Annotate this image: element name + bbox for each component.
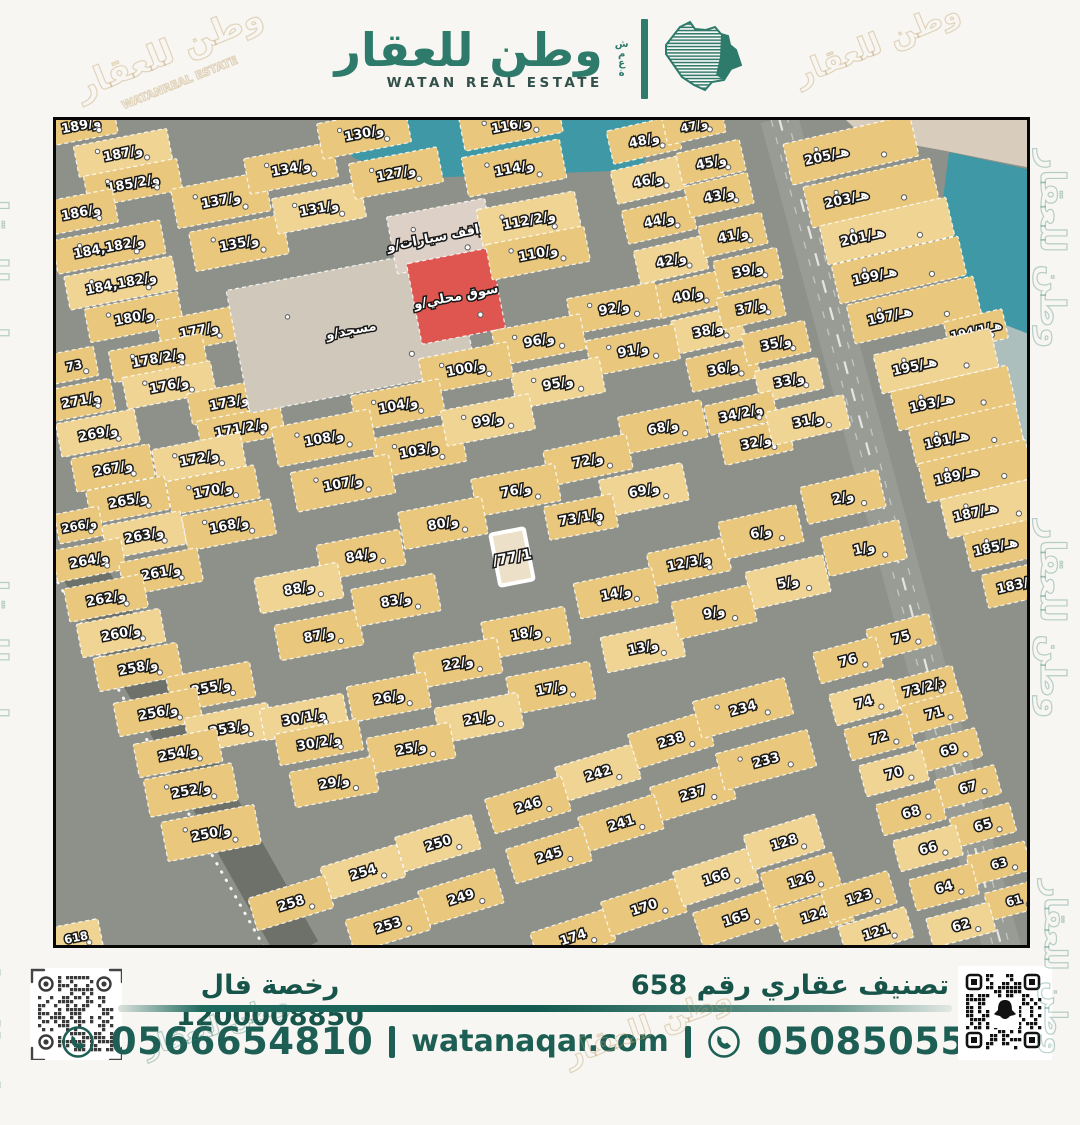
parcel-dot [369,168,374,173]
parcel-dot [991,437,997,443]
parcel-dot [105,179,110,184]
parcel-dot [146,284,152,290]
parcel-dot [89,279,94,284]
parcel-dot [124,601,130,607]
parcel-dot [88,528,94,534]
parcel-dot [570,692,576,698]
parcel-dot [901,194,907,200]
header: وطن للعقار WATAN REAL ESTATE ش م ع ة [0,0,1080,118]
parcel-dot [197,755,203,761]
brand-arabic: وطن للعقار [334,27,602,73]
parcel-dot [164,784,169,789]
parcel-dot [498,721,504,727]
parcel-dot [723,332,729,338]
contact-row: 0566654810 watanaqar.com 0508505505 [0,1020,1080,1063]
parcel-dot [725,164,731,170]
parcel-dot [95,403,101,409]
parcel-dot [509,248,514,253]
parcel-dot [292,203,297,208]
parcel-dot [177,714,183,720]
parcel-dot [826,422,832,428]
parcel-dot [193,194,198,199]
watermark-text: وطن للعقار [0,180,14,378]
parcel-dot [83,368,89,374]
parcel-dot [707,564,713,570]
parcel-dot [134,248,140,254]
parcel-dot [653,353,659,359]
parcel-dot [559,343,565,349]
parcel-dot [249,528,255,534]
parcel-dot [881,151,887,157]
saudi-map-logo-icon [658,17,746,101]
parcel-dot [144,154,150,160]
parcel-dot [416,176,422,182]
parcel-dot [733,197,739,203]
parcel-dot [415,604,421,610]
parcel-dot [77,243,82,248]
parcel-dot [486,371,492,377]
parcel-dot [339,211,345,217]
parcel-dot [682,430,688,436]
separator-bar [685,1026,691,1058]
parcel-dot [882,551,888,557]
parcel-dot [248,731,254,737]
brand-wordmark: وطن للعقار WATAN REAL ESTATE [334,27,602,91]
parcel-dot [482,121,487,126]
parcel-dot [318,591,324,597]
parcel-dot [929,271,935,277]
parcel-dot [587,303,592,308]
parcel-dot [917,232,923,238]
whatsapp-icon [61,1025,95,1059]
parcel-dot [338,638,344,644]
parcel-dot [104,563,110,569]
parcel-dot [944,311,950,317]
parcel-dot [738,370,744,376]
parcel-dot [418,408,424,414]
parcel-label: 73 [65,357,83,374]
parcel-dot [512,335,517,340]
parcel-dot [392,444,397,449]
parcel-dot [183,827,188,832]
parcel-dot [409,351,415,357]
parcel-dot [877,307,882,312]
parcel-dot [756,414,762,420]
parcel-dot [380,558,386,564]
parcel-dot [707,126,713,132]
parcel-dot [233,492,239,498]
separator-bar [389,1026,395,1058]
parcel-dot [533,127,539,133]
parcel-dot [366,486,372,492]
parcel-dot [663,493,669,499]
parcel-dot [484,163,489,168]
parcel-dot [537,171,543,177]
parcel-dot [714,704,719,709]
parcel-dot [803,382,809,388]
parcel-dot [130,354,135,359]
parcel-dot [1001,473,1007,479]
parcel-dot [814,147,819,152]
parcel-dot [806,585,812,591]
parcel-dot [140,635,146,641]
parcel-dot [411,227,416,232]
parcel-dot [202,520,207,525]
parcel-dot [430,751,436,757]
parcel-dot [337,128,342,133]
parcel-dot [230,690,236,696]
parcel-dot [461,415,466,420]
parcel-dot [264,163,269,168]
parcel-dot [779,535,785,541]
parcel-dot [545,637,551,643]
parcel-dot [862,267,867,272]
parcel-dot [634,311,640,317]
parcel-dot [508,423,514,429]
parcel-dot [96,215,102,221]
parcel-dot [663,182,669,188]
parcel-dot [934,431,939,436]
parcel-dot [407,700,413,706]
parcel-dot [162,538,168,544]
parcel-dot [154,184,160,190]
parcel-dot [232,837,238,843]
parcel-dot [465,244,471,250]
parcel-dot [963,362,969,368]
parcel-dot [106,312,111,317]
parcel-dot [634,596,640,602]
parcel-dot [861,500,867,506]
watermark-text: وطن للعقار [1032,150,1072,348]
parcel-dot [462,527,468,533]
classification-label: تصنيف عقاري رقم 658 [620,970,960,1001]
parcel-dot [980,399,986,405]
parcel-dot [95,149,100,154]
parcel-map: و/189و/187و/185/2و/186و/184,182و/184,182… [56,120,1027,945]
parcel-dot [499,215,504,220]
parcel-dot [189,387,195,393]
parcel-dot [142,381,147,386]
parcel-dot [116,436,122,442]
parcel-dot [732,615,738,621]
parcel-dot [686,262,692,268]
parcel-dot [384,136,390,142]
parcel-dot [834,190,839,195]
parcel-dot [338,744,344,750]
parcel-dot [765,309,771,315]
parcel-dot [146,503,152,509]
parcel-dot [211,793,217,799]
parcel-dot [901,358,906,363]
parcel-dot [219,460,225,466]
parcel-dot [737,756,742,761]
brand-side-letters: ش م ع ة [615,40,629,78]
parcel-dot [535,494,541,500]
parcel-dot [661,650,667,656]
footer: رخصة فال 1200008850 تصنيف عقاري رقم 658 … [0,948,1080,1080]
parcel-dot [186,485,191,490]
parcel-dot [596,520,602,526]
parcel-dot [313,478,318,483]
parcel-dot [439,454,445,460]
parcel-dot [285,314,290,319]
parcel-dot [703,297,709,303]
parcel-dot [918,395,923,400]
whatsapp-icon [707,1025,741,1059]
parcel-dot [790,345,796,351]
parcel-dot [172,453,177,458]
parcel-dot [86,939,92,945]
map: و/189و/187و/185/2و/186و/184,182و/184,182… [53,117,1030,948]
parcel-dot [659,142,665,148]
phone-left: 0566654810 [111,1020,373,1063]
parcel-dot [674,222,680,228]
parcel-dot [157,669,163,675]
parcel-dot [371,400,376,405]
parcel-dot [850,228,855,233]
parcel-dot [294,433,299,438]
parcel-dot [963,503,968,508]
parcel-dot [607,463,613,469]
parcel-dot [439,363,444,368]
parcel-dot [311,171,317,177]
parcel-dot [984,538,989,543]
parcel-dot [131,471,137,477]
parcel-dot [217,333,223,339]
parcel-dot [477,666,483,672]
parcel-dot [560,255,566,261]
parcel-dot [211,237,216,242]
parcel-dot [242,204,248,210]
watermark-text: وطن للعقار [0,560,14,758]
parcel-dot [531,378,536,383]
watermark-text: وطن للعقار [1032,520,1072,718]
parcel-dot [96,127,102,133]
parcel-dot [762,272,768,278]
footer-divider-line [118,1005,952,1012]
brand-english: WATAN REAL ESTATE [387,77,603,91]
parcel-dot [353,785,359,791]
parcel-dot [347,441,353,447]
qr-code-snapchat [958,966,1052,1060]
parcel-dot [552,223,558,229]
parcel-dot [179,575,185,581]
parcel-dot [578,386,584,392]
parcel-dot [179,359,185,365]
logo-divider-bar [641,19,648,99]
website: watanaqar.com [411,1024,668,1059]
parcel-dot [606,345,611,350]
parcel-dot [747,237,753,243]
parcel-dot [477,312,483,318]
parcel-dot [260,429,266,435]
parcel-dot [260,247,266,253]
parcel-dot [1016,510,1022,516]
parcel-dot [944,467,949,472]
